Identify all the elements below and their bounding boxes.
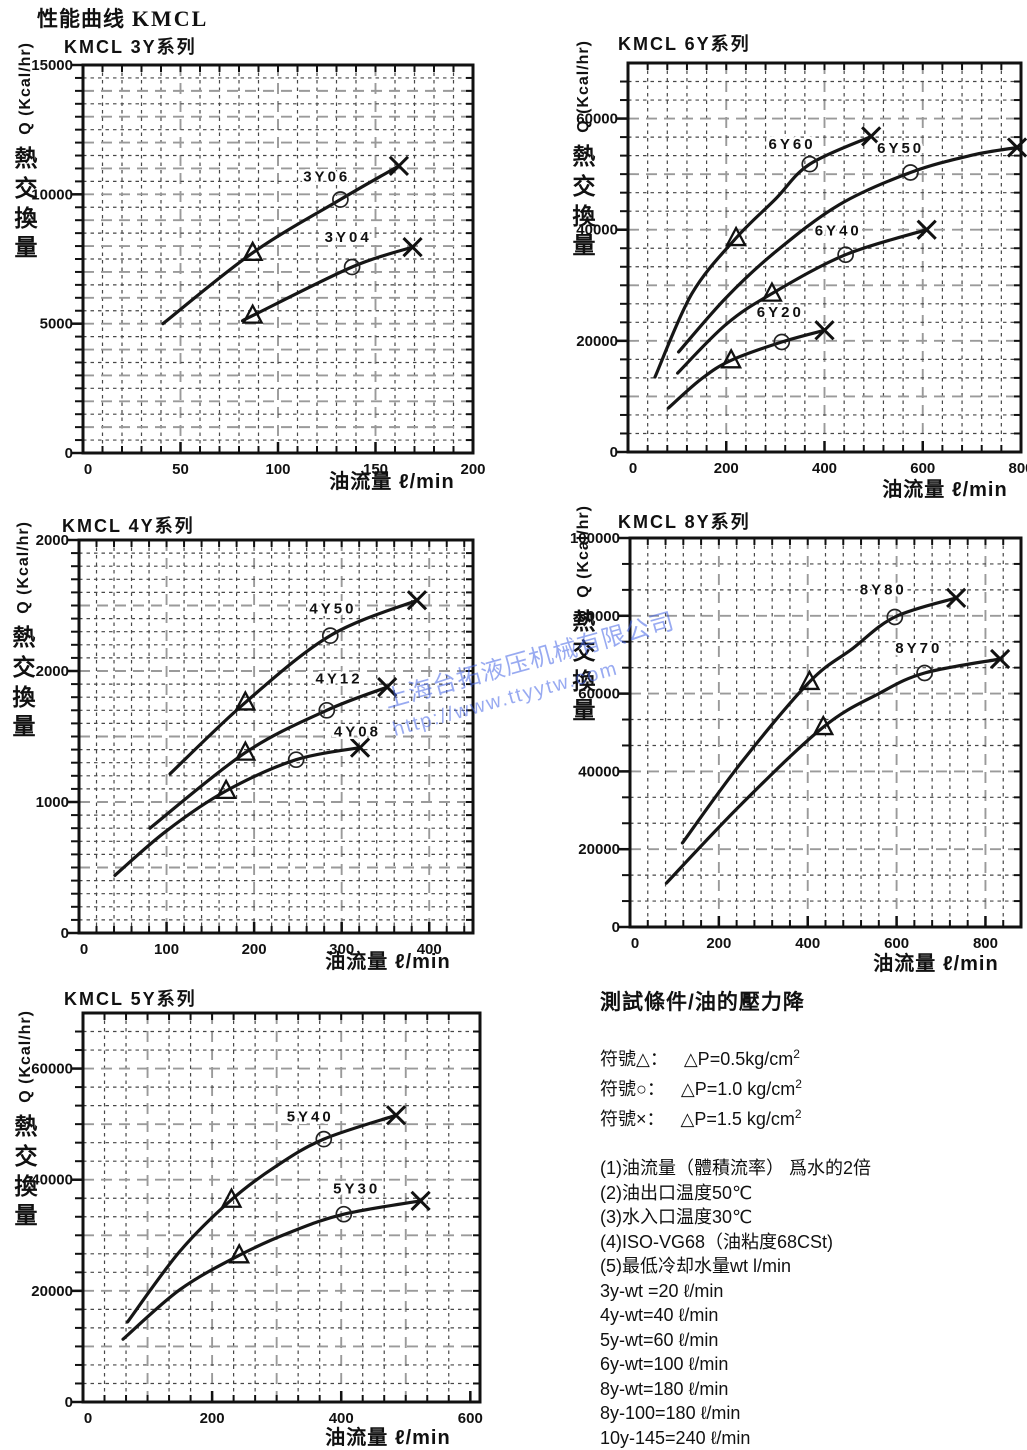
- series-label: 6Y50: [877, 140, 924, 157]
- marker-x: [379, 679, 395, 695]
- x-tick-label: 200: [200, 1410, 225, 1427]
- y-tick-label: 2000: [36, 663, 69, 680]
- x-tick-label: 0: [84, 1410, 92, 1427]
- chart-3y: KMCL 3Y系列 Q (Kcal/hr) 熱交換量 0501001502000…: [0, 28, 506, 498]
- symbol-legend-row: 符號○：△P=1.0 kg/cm2: [600, 1072, 1024, 1102]
- chart-4y-plot: 010020030040001000200020004Y504Y124Y08: [0, 505, 506, 965]
- note-line: (2)油出口温度50℃: [600, 1181, 1024, 1206]
- test-conditions-title: 測試條件/油的壓力降: [600, 986, 1024, 1016]
- y-tick-label: 40000: [578, 763, 620, 780]
- plot-area: 0501001502000500010000150003Y063Y04: [31, 57, 485, 478]
- note-line: 8y-wt=180 ℓ/min: [600, 1377, 1024, 1402]
- x-axis-title: 油流量 ℓ/min: [288, 1421, 488, 1450]
- y-tick-label: 20000: [31, 1283, 73, 1300]
- series-curve-5Y30: [123, 1201, 421, 1339]
- note-line: 10y-145=240 ℓ/min: [600, 1426, 1024, 1450]
- y-tick-label: 100000: [570, 530, 620, 547]
- y-tick-label: 60000: [576, 111, 618, 128]
- x-axis-title: 油流量 ℓ/min: [836, 947, 1027, 976]
- series-curve-4Y50: [170, 600, 417, 774]
- note-line: 3y-wt =20 ℓ/min: [600, 1279, 1024, 1304]
- y-tick-label: 60000: [578, 686, 620, 703]
- series-label: 6Y40: [815, 222, 862, 239]
- series-label: 6Y20: [757, 304, 804, 321]
- note-line: (5)最低冷却水量wt l/min: [600, 1254, 1024, 1279]
- y-tick-label: 0: [65, 1394, 73, 1411]
- plot-area: 020040060080002000040000600006Y606Y506Y4…: [576, 63, 1027, 477]
- chart-3y-plot: 0501001502000500010000150003Y063Y04: [0, 28, 506, 498]
- series-label: 4Y50: [309, 600, 356, 617]
- x-tick-label: 100: [154, 941, 179, 958]
- chart-5y-plot: 020040060002000040000600005Y405Y30: [0, 978, 506, 1442]
- series-label: 8Y70: [895, 640, 942, 657]
- y-tick-label: 20000: [578, 841, 620, 858]
- series-label: 3Y04: [325, 229, 372, 246]
- plot-area: 010020030040001000200020004Y504Y124Y08: [36, 532, 473, 958]
- note-line: 4y-wt=40 ℓ/min: [600, 1303, 1024, 1328]
- note-line: (1)油流量（體積流率） 爲水的2倍: [600, 1156, 1024, 1181]
- note-line: 6y-wt=100 ℓ/min: [600, 1352, 1024, 1377]
- y-tick-label: 15000: [31, 57, 73, 74]
- symbol-legend-row: 符號△：△P=0.5kg/cm2: [600, 1042, 1024, 1072]
- series-label: 5Y40: [287, 1108, 334, 1125]
- symbol-x-label: 符號×：: [600, 1109, 665, 1129]
- x-tick-label: 200: [706, 935, 731, 952]
- marker-x: [388, 1107, 404, 1123]
- symbol-legend-row: 符號×：△P=1.5 kg/cm2: [600, 1102, 1024, 1132]
- test-conditions: 測試條件/油的壓力降 符號△：△P=0.5kg/cm2 符號○：△P=1.0 k…: [600, 986, 1024, 1450]
- chart-5y: KMCL 5Y系列 Q (Kcal/hr) 熱交換量 0200400600020…: [0, 978, 506, 1442]
- chart-6y: KMCL 6Y系列 Q (Kcal/hr) 熱交換量 0200400600800…: [522, 28, 1027, 498]
- x-tick-label: 200: [242, 941, 267, 958]
- x-tick-label: 200: [714, 460, 739, 477]
- chart-4y: KMCL 4Y系列 Q (Kcal/hr) 熱交換量 0100200300400…: [0, 505, 506, 965]
- y-tick-label: 5000: [40, 316, 73, 333]
- series-curve-3Y04: [243, 247, 413, 321]
- chart-6y-plot: 020040060080002000040000600006Y606Y506Y4…: [522, 28, 1027, 498]
- x-axis-title: 油流量 ℓ/min: [288, 945, 488, 974]
- note-line: (3)水入口温度30℃: [600, 1205, 1024, 1230]
- series-curve-8Y80: [682, 598, 956, 843]
- y-tick-label: 10000: [31, 186, 73, 203]
- y-tick-label: 40000: [576, 222, 618, 239]
- y-tick-label: 0: [61, 925, 69, 942]
- y-tick-label: 0: [612, 919, 620, 936]
- notes-list: (1)油流量（體積流率） 爲水的2倍 (2)油出口温度50℃ (3)水入口温度3…: [600, 1156, 1024, 1450]
- series-label: 6Y60: [769, 136, 816, 153]
- x-tick-label: 400: [812, 460, 837, 477]
- x-tick-label: 100: [265, 461, 290, 478]
- y-tick-label: 60000: [31, 1061, 73, 1078]
- marker-x: [405, 239, 421, 255]
- symbol-triangle-label: 符號△：: [600, 1049, 668, 1069]
- x-axis-title: 油流量 ℓ/min: [845, 473, 1027, 502]
- series-label: 4Y12: [316, 670, 363, 687]
- x-tick-label: 50: [172, 461, 189, 478]
- x-tick-label: 400: [795, 935, 820, 952]
- note-line: 5y-wt=60 ℓ/min: [600, 1328, 1024, 1353]
- x-tick-label: 0: [80, 941, 88, 958]
- symbol-legend: 符號△：△P=0.5kg/cm2 符號○：△P=1.0 kg/cm2 符號×：△…: [600, 1042, 1024, 1132]
- chart-8y-plot: 0200400600800020000400006000080000100000…: [522, 500, 1027, 965]
- y-tick-label: 40000: [31, 1172, 73, 1189]
- plot-area: 0200400600800020000400006000080000100000…: [570, 530, 1021, 952]
- y-tick-label: 1000: [36, 794, 69, 811]
- note-line: 8y-100=180 ℓ/min: [600, 1401, 1024, 1426]
- x-tick-label: 0: [84, 461, 92, 478]
- y-tick-label: 20000: [576, 333, 618, 350]
- x-tick-label: 0: [631, 935, 639, 952]
- y-tick-label: 2000: [36, 532, 69, 549]
- series-curve-6Y40: [678, 230, 927, 373]
- series-curve-4Y08: [115, 748, 360, 876]
- x-tick-label: 0: [629, 460, 637, 477]
- series-label: 3Y06: [303, 168, 350, 185]
- series-label: 5Y30: [333, 1181, 380, 1198]
- series-label: 8Y80: [860, 581, 907, 598]
- y-tick-label: 80000: [578, 608, 620, 625]
- series-label: 4Y08: [334, 724, 381, 741]
- plot-area: 020040060002000040000600005Y405Y30: [31, 1013, 483, 1427]
- note-line: (4)ISO-VG68（油粘度68CSt): [600, 1230, 1024, 1255]
- chart-8y: KMCL 8Y系列 Q (Kcal/hr) 熱交換量 0200400600800…: [522, 500, 1027, 965]
- y-tick-label: 0: [65, 445, 73, 462]
- symbol-circle-label: 符號○：: [600, 1079, 665, 1099]
- marker-x: [391, 158, 407, 174]
- y-tick-label: 0: [610, 444, 618, 461]
- x-axis-title: 油流量 ℓ/min: [292, 465, 492, 494]
